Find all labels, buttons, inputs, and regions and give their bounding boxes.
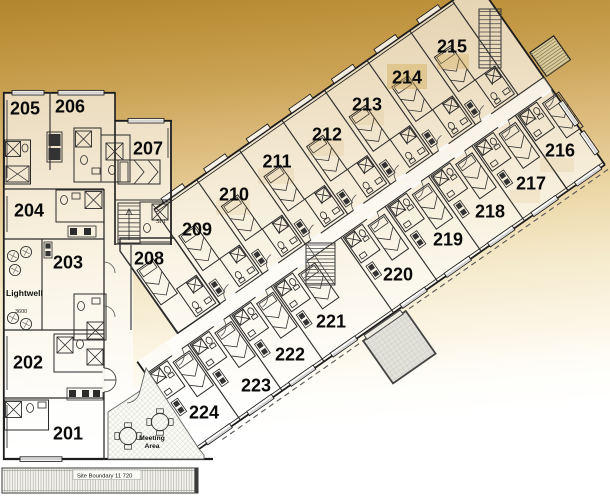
svg-text:206: 206 (55, 97, 85, 117)
svg-text:210: 210 (219, 185, 249, 205)
svg-text:203: 203 (53, 253, 83, 273)
svg-text:209: 209 (182, 220, 212, 240)
svg-text:212: 212 (312, 125, 342, 145)
svg-text:214: 214 (392, 68, 422, 88)
svg-text:204: 204 (14, 201, 44, 221)
svg-text:St 1: St 1 (156, 219, 166, 225)
svg-text:213: 213 (352, 95, 382, 115)
svg-text:Lightwell: Lightwell (6, 288, 43, 298)
svg-text:Area: Area (144, 443, 159, 450)
svg-text:202: 202 (13, 353, 43, 373)
svg-text:207: 207 (133, 139, 163, 159)
svg-text:Site Boundary 11 720: Site Boundary 11 720 (77, 474, 132, 480)
svg-text:222: 222 (275, 345, 305, 365)
svg-text:208: 208 (134, 249, 164, 269)
svg-text:216: 216 (545, 141, 575, 161)
svg-text:220: 220 (383, 265, 413, 285)
svg-text:218: 218 (475, 202, 505, 222)
svg-text:215: 215 (437, 37, 467, 57)
svg-text:Meeting: Meeting (139, 435, 165, 442)
svg-text:3600: 3600 (15, 309, 27, 315)
svg-text:211: 211 (262, 152, 291, 172)
svg-text:201: 201 (53, 424, 83, 444)
svg-text:223: 223 (241, 376, 271, 396)
svg-text:219: 219 (433, 230, 463, 250)
svg-text:221: 221 (316, 312, 346, 332)
svg-text:224: 224 (189, 403, 219, 423)
svg-text:217: 217 (516, 174, 546, 194)
svg-text:205: 205 (10, 99, 40, 119)
